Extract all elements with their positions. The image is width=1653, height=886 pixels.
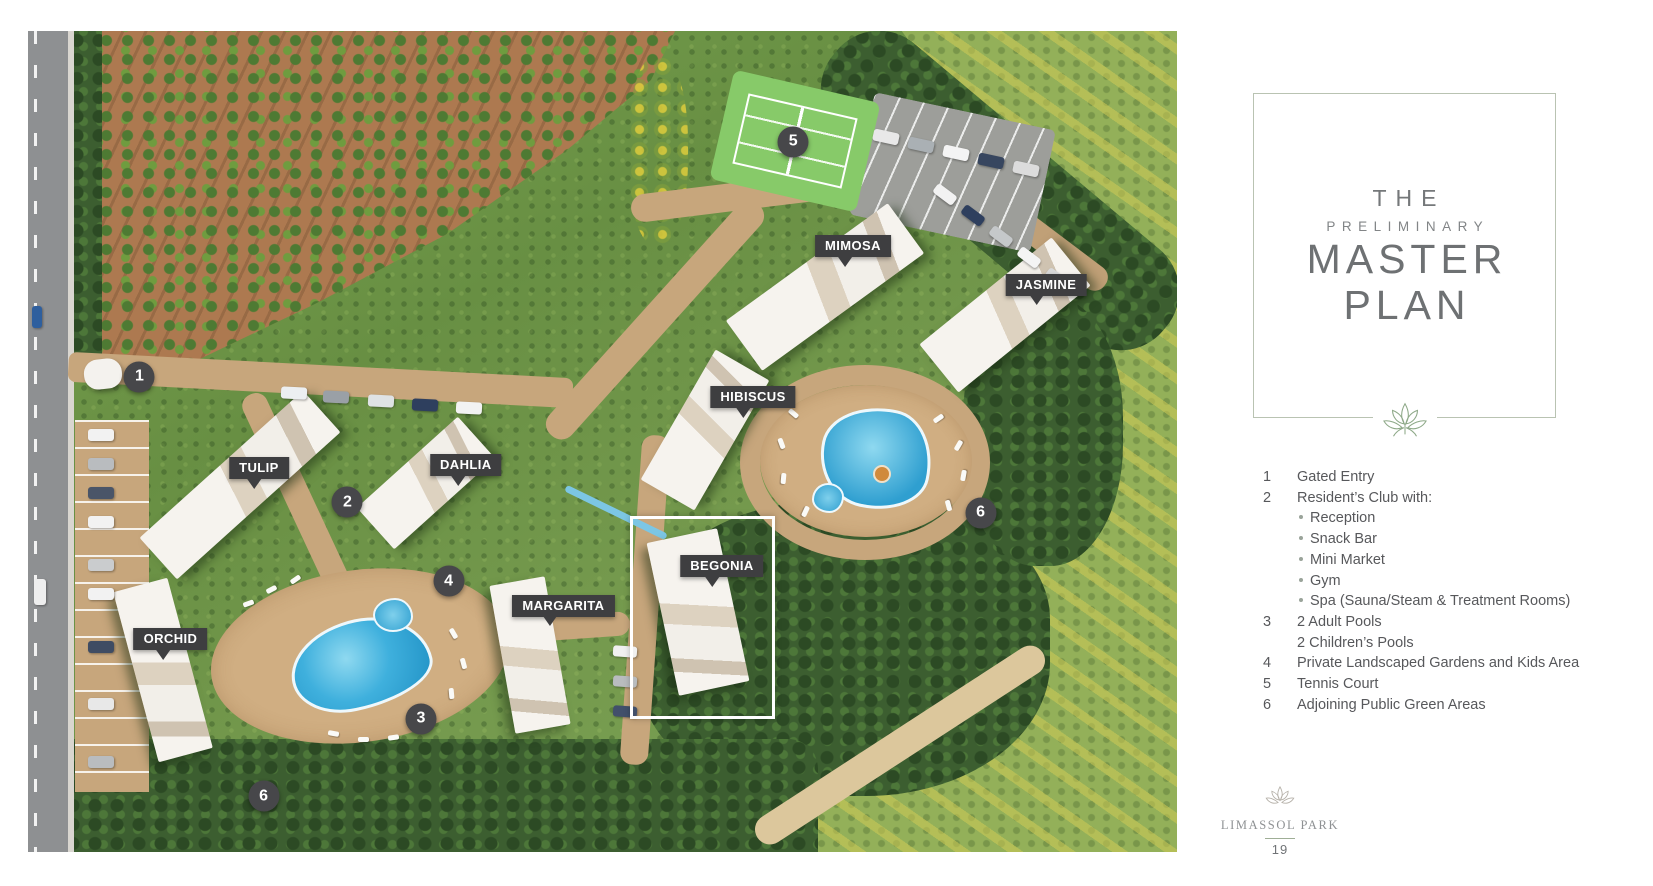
title-line-master: MASTER — [1302, 239, 1508, 280]
building-label-jasmine: JASMINE — [1006, 274, 1087, 296]
legend-number: 4 — [1263, 653, 1297, 674]
legend-number: 1 — [1263, 467, 1297, 488]
legend-item-text: Private Landscaped Gardens and Kids Area — [1297, 653, 1579, 674]
legend-number-blank — [1263, 550, 1297, 571]
legend-number-blank — [1263, 571, 1297, 592]
legend-item-text: Adjoining Public Green Areas — [1297, 695, 1579, 716]
building-label-hibiscus: HIBISCUS — [710, 386, 795, 408]
building-label-tulip: TULIP — [229, 457, 289, 479]
map-marker-4: 4 — [433, 566, 464, 597]
bullet-dot-icon — [1299, 515, 1303, 519]
map-marker-6: 6 — [965, 497, 996, 528]
map-marker-6: 6 — [248, 781, 279, 812]
legend-number: 2 — [1263, 488, 1297, 509]
building-label-margarita: MARGARITA — [512, 595, 614, 617]
legend-number: 6 — [1263, 695, 1297, 716]
building-label-mimosa: MIMOSA — [815, 235, 891, 257]
legend-item-text: Resident’s Club with: — [1297, 488, 1579, 509]
legend-number-blank — [1263, 508, 1297, 529]
master-plan-title-box: THE PRELIMINARY MASTER PLAN — [1253, 93, 1556, 418]
brochure-page: TULIPDAHLIAORCHIDMARGARITABEGONIAHIBISCU… — [0, 0, 1653, 886]
legend-item-text: Gated Entry — [1297, 467, 1579, 488]
legend-number — [1263, 633, 1297, 654]
legend-item-text: 2 Adult Pools — [1297, 612, 1579, 633]
building-label-dahlia: DAHLIA — [430, 454, 502, 476]
title-line-plan: PLAN — [1338, 285, 1470, 326]
bullet-dot-icon — [1299, 598, 1303, 602]
legend-bullet-item: Snack Bar — [1297, 529, 1579, 550]
legend-item-text: Tennis Court — [1297, 674, 1579, 695]
title-line-preliminary: PRELIMINARY — [1320, 219, 1489, 234]
building-label-orchid: ORCHID — [134, 628, 208, 650]
site-plan-map: TULIPDAHLIAORCHIDMARGARITABEGONIAHIBISCU… — [28, 31, 1177, 852]
legend-number-blank — [1263, 591, 1297, 612]
brand-leaf-icon — [1265, 796, 1295, 813]
brand-footer: LIMASSOL PARK 19 — [1200, 786, 1360, 857]
map-marker-2: 2 — [332, 487, 363, 518]
highlight-box-begonia — [630, 516, 775, 719]
brand-name: LIMASSOL PARK — [1200, 818, 1360, 833]
title-line-the: THE — [1364, 185, 1446, 212]
map-marker-5: 5 — [778, 126, 809, 157]
legend-bullet-item: Spa (Sauna/Steam & Treatment Rooms) — [1297, 591, 1579, 612]
legend-bullet-item: Reception — [1297, 508, 1579, 529]
building-label-begonia: BEGONIA — [680, 555, 763, 577]
legend-bullet-item: Gym — [1297, 571, 1579, 592]
bullet-dot-icon — [1299, 557, 1303, 561]
map-marker-1: 1 — [124, 361, 155, 392]
bullet-dot-icon — [1299, 536, 1303, 540]
leaf-emblem-icon — [1373, 402, 1437, 438]
legend-number-blank — [1263, 529, 1297, 550]
map-annotations: TULIPDAHLIAORCHIDMARGARITABEGONIAHIBISCU… — [28, 31, 1177, 852]
bullet-dot-icon — [1299, 578, 1303, 582]
legend-list: 1Gated Entry2Resident’s Club with:Recept… — [1263, 467, 1579, 715]
legend-number: 3 — [1263, 612, 1297, 633]
footer-divider — [1265, 838, 1295, 839]
legend-item-text: 2 Children’s Pools — [1297, 633, 1579, 654]
page-number: 19 — [1200, 842, 1360, 857]
map-marker-3: 3 — [405, 703, 436, 734]
legend-bullet-item: Mini Market — [1297, 550, 1579, 571]
legend-number: 5 — [1263, 674, 1297, 695]
